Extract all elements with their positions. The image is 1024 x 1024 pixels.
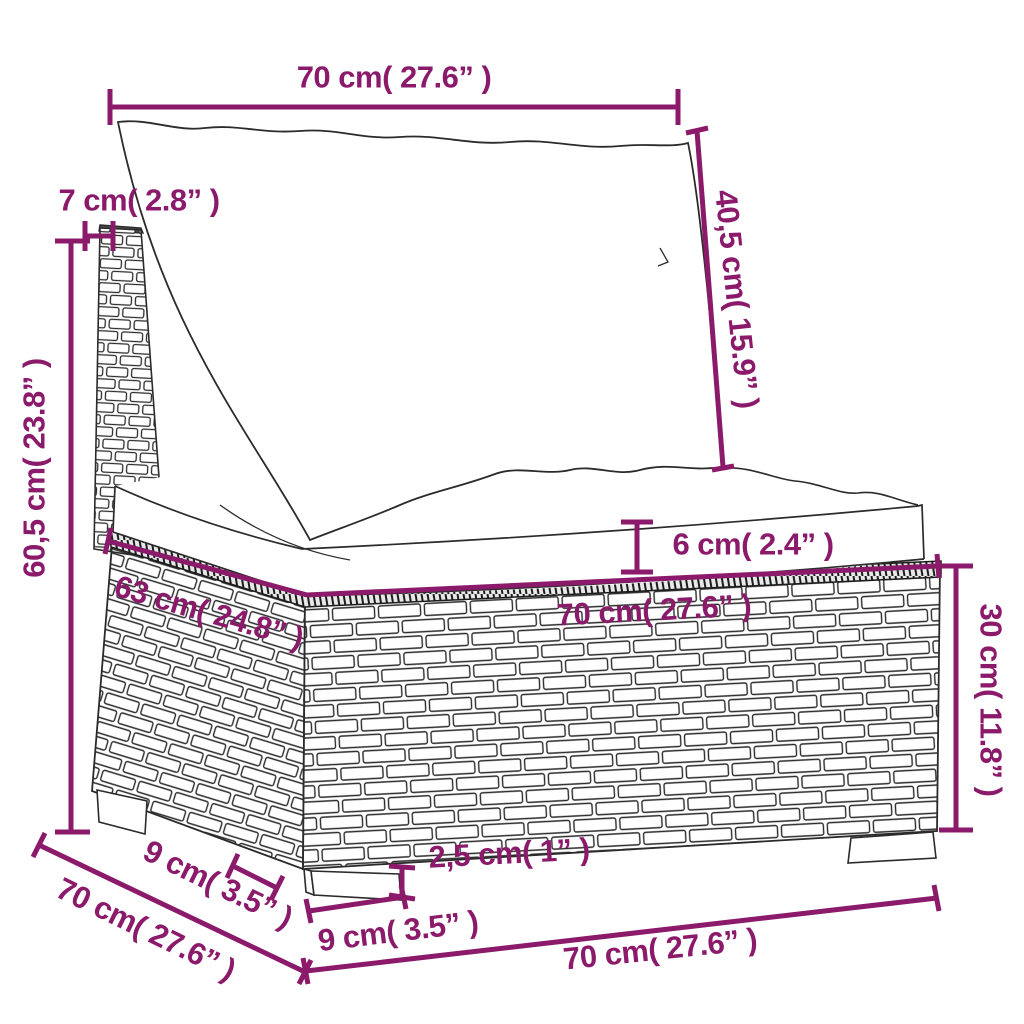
dim-foot-height-label: 2,5 cm( 1” ) <box>428 833 591 872</box>
dim-top-width-label: 70 cm( 27.6” ) <box>297 62 492 93</box>
dim-seat-cushion-thickness-label: 6 cm( 2.4” ) <box>672 529 833 560</box>
foot-front-right <box>848 832 936 863</box>
dim-base-height-label: 30 cm( 11.8” ) <box>976 604 1007 797</box>
dim-back-panel-thickness-label: 7 cm( 2.8” ) <box>58 185 219 216</box>
foot-front-left-face <box>311 871 401 900</box>
product-dimension-image: 70 cm( 27.6” ) 7 cm( 2.8” ) 40,5 cm( 15.… <box>0 0 1024 1024</box>
dim-total-height-label: 60,5 cm( 23.8” ) <box>19 358 50 577</box>
